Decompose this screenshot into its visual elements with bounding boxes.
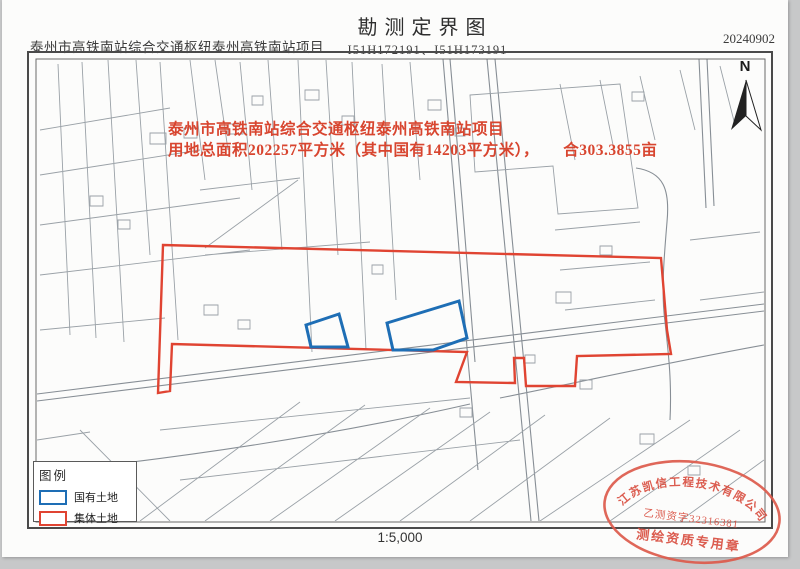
land-area-annotation: 泰州市高铁南站综合交通枢纽泰州高铁南站项目 用地总面积202257平方米（其中国… xyxy=(168,119,728,161)
surveying-qualification-stamp: 江苏凯信工程技术有限公司 乙测资字32316381 测绘资质专用章 xyxy=(599,452,786,569)
legend-item-state-land: 国有土地 xyxy=(39,489,136,505)
north-arrow-icon xyxy=(731,80,761,130)
legend-title: 图例 xyxy=(39,465,136,484)
legend-item-label: 集体土地 xyxy=(74,510,118,526)
north-label: N xyxy=(730,58,760,75)
legend-item-label: 国有土地 xyxy=(74,489,118,505)
legend-item-collective-land: 集体土地 xyxy=(39,510,136,526)
collective-land-swatch xyxy=(39,511,67,526)
annotation-line-2: 用地总面积202257平方米（其中国有14203平方米）， 合303.3855亩 xyxy=(168,140,728,161)
stamp-caption-text: 测绘资质专用章 xyxy=(635,526,741,554)
legend: 图例 国有土地 集体土地 xyxy=(33,461,137,522)
map-scale: 1:5,000 xyxy=(300,530,500,545)
annotation-line-1: 泰州市高铁南站综合交通枢纽泰州高铁南站项目 xyxy=(168,119,728,140)
state-land-parcel-east xyxy=(387,301,467,350)
state-land-swatch xyxy=(39,490,67,505)
state-land-parcel-west xyxy=(306,314,348,347)
